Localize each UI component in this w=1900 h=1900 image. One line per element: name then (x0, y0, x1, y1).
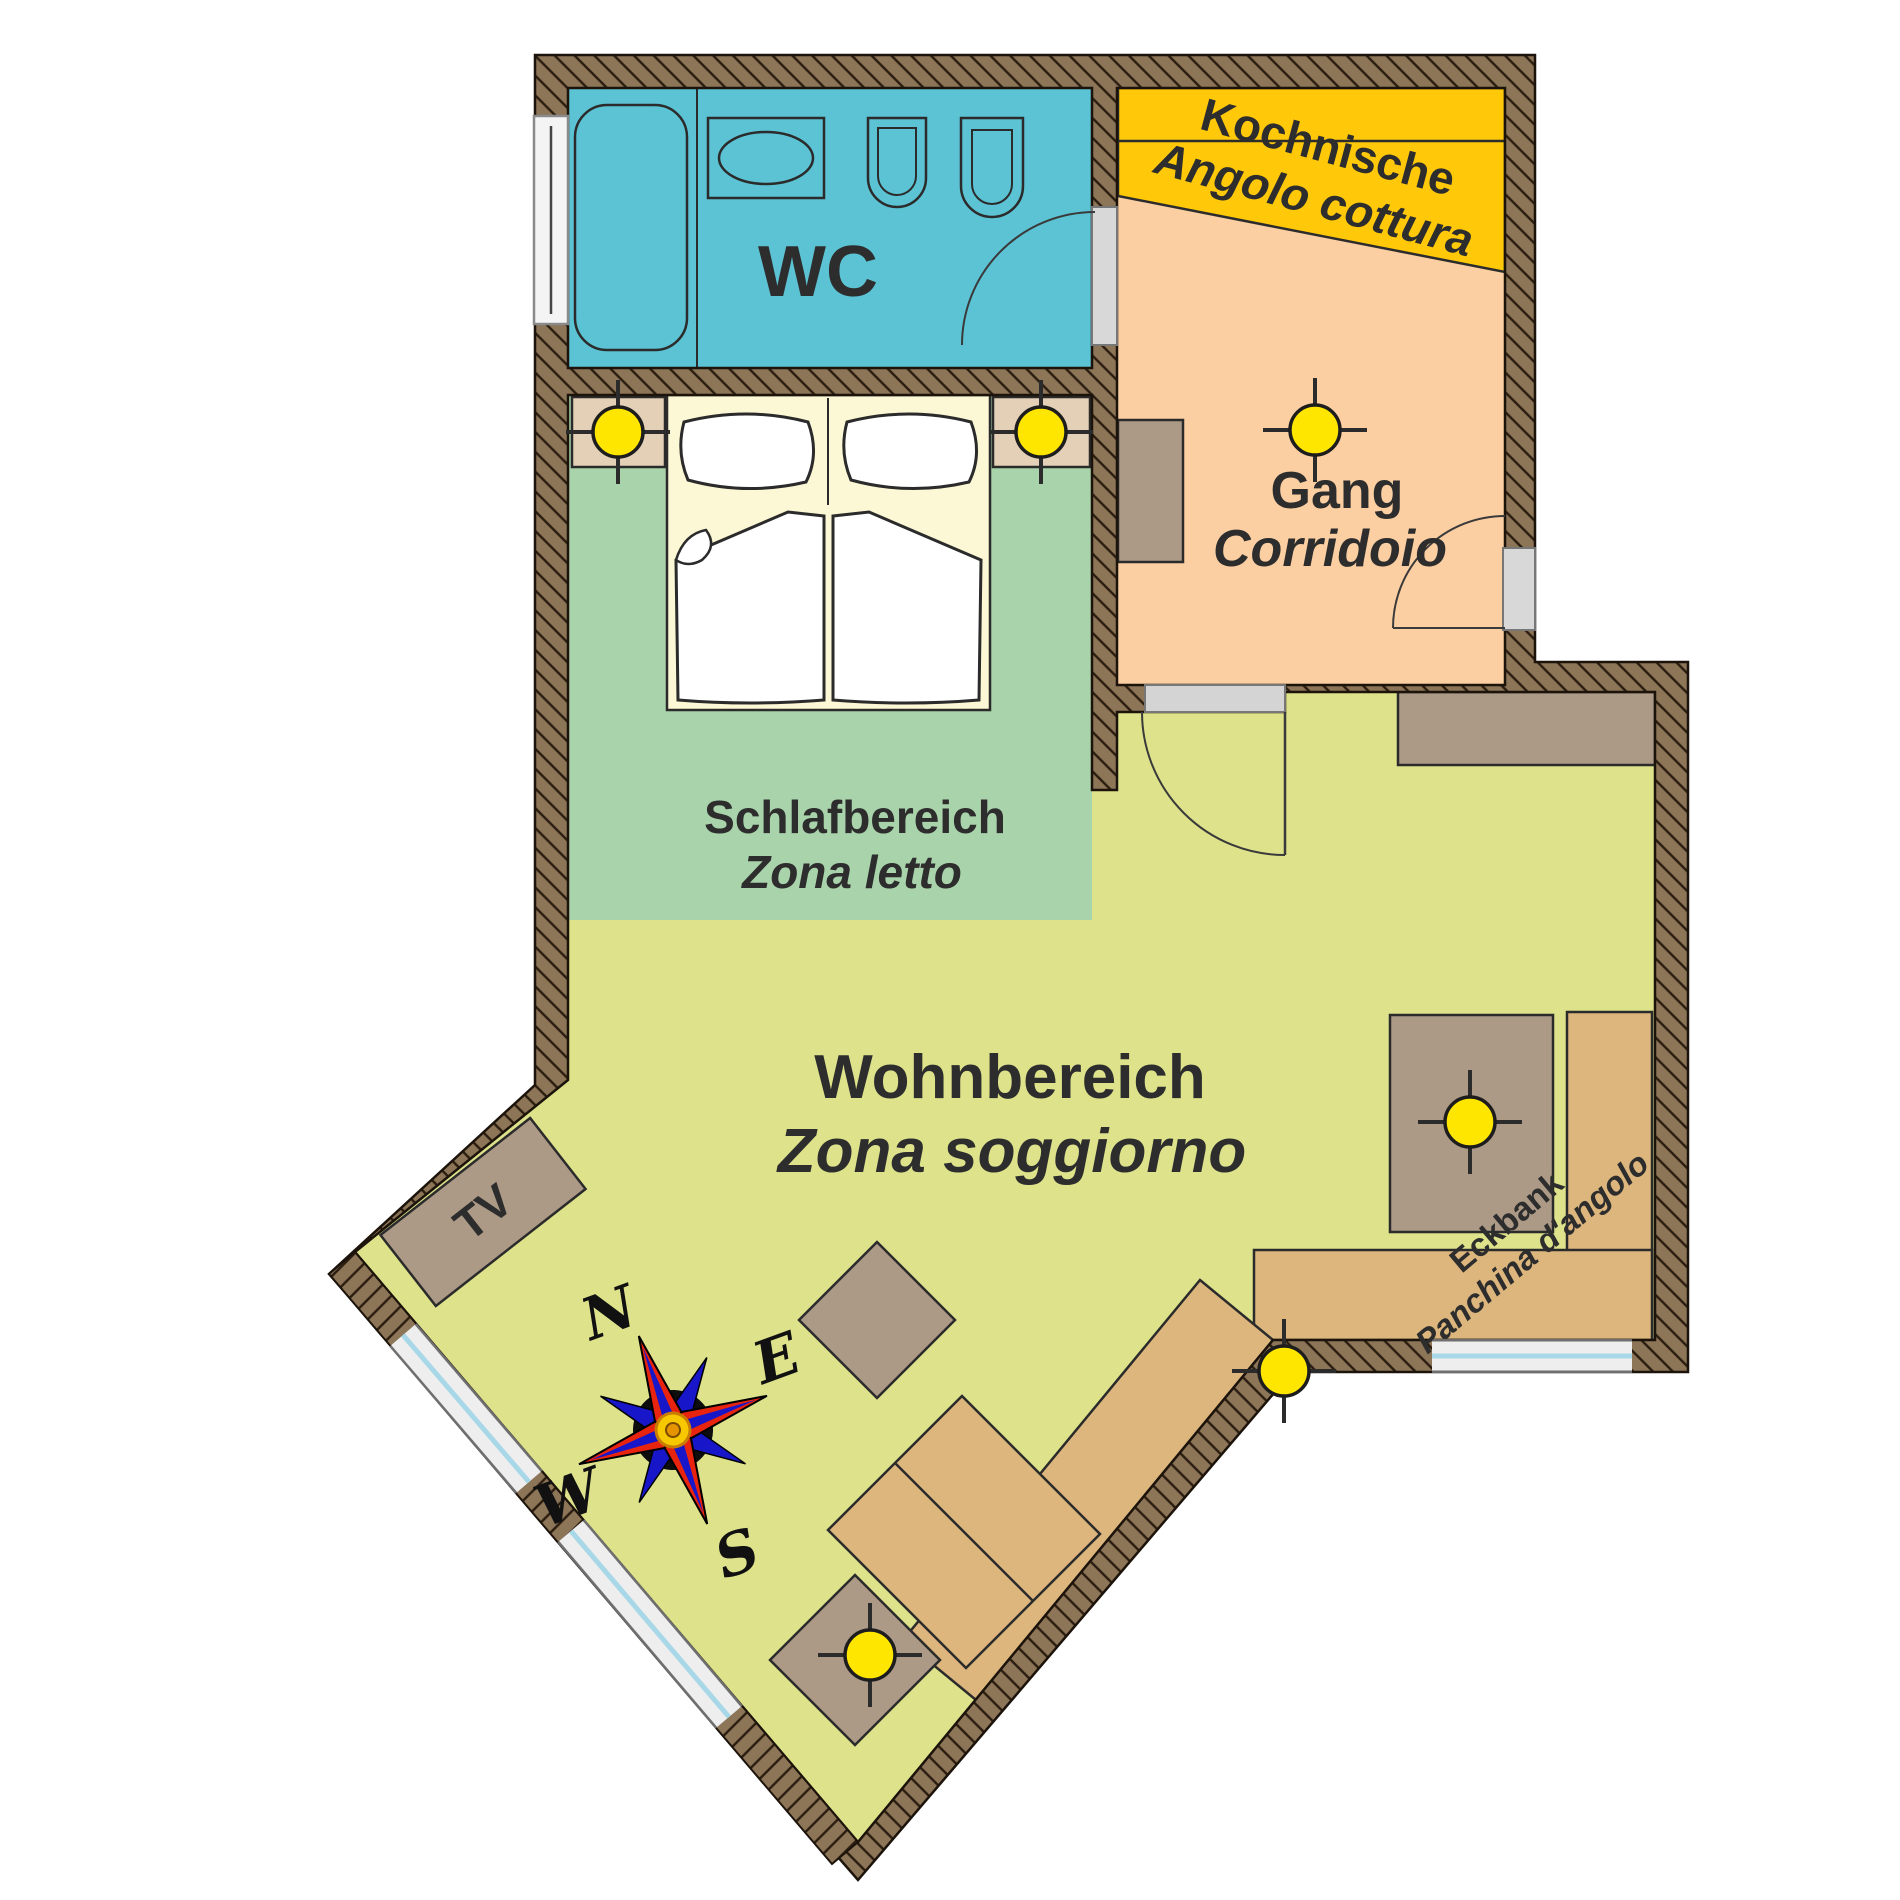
living-door-threshold (1145, 685, 1285, 712)
corridor-wardrobe (1118, 420, 1183, 562)
floorplan-page: TV (0, 0, 1900, 1900)
living-label-de: Wohnbereich (814, 1043, 1206, 1112)
entry-door-leaf (1503, 548, 1535, 630)
pillow-right (844, 414, 977, 489)
washbasin-icon (719, 132, 813, 184)
bathtub-icon (575, 105, 687, 350)
toilet-inner (972, 130, 1012, 204)
corridor-label-it: Corridoio (1213, 520, 1447, 578)
corridor-label-de: Gang (1271, 462, 1404, 520)
sleeping-label-it: Zona letto (740, 846, 962, 898)
pillow-left (681, 414, 814, 489)
wc-door-leaf (1092, 207, 1117, 345)
sideboard-top (1398, 692, 1655, 765)
floorplan-svg: TV (0, 0, 1900, 1900)
sleeping-label-de: Schlafbereich (704, 791, 1006, 843)
living-label-it: Zona soggiorno (776, 1117, 1246, 1186)
bidet-inner (878, 128, 916, 195)
wc-label: WC (758, 232, 878, 312)
